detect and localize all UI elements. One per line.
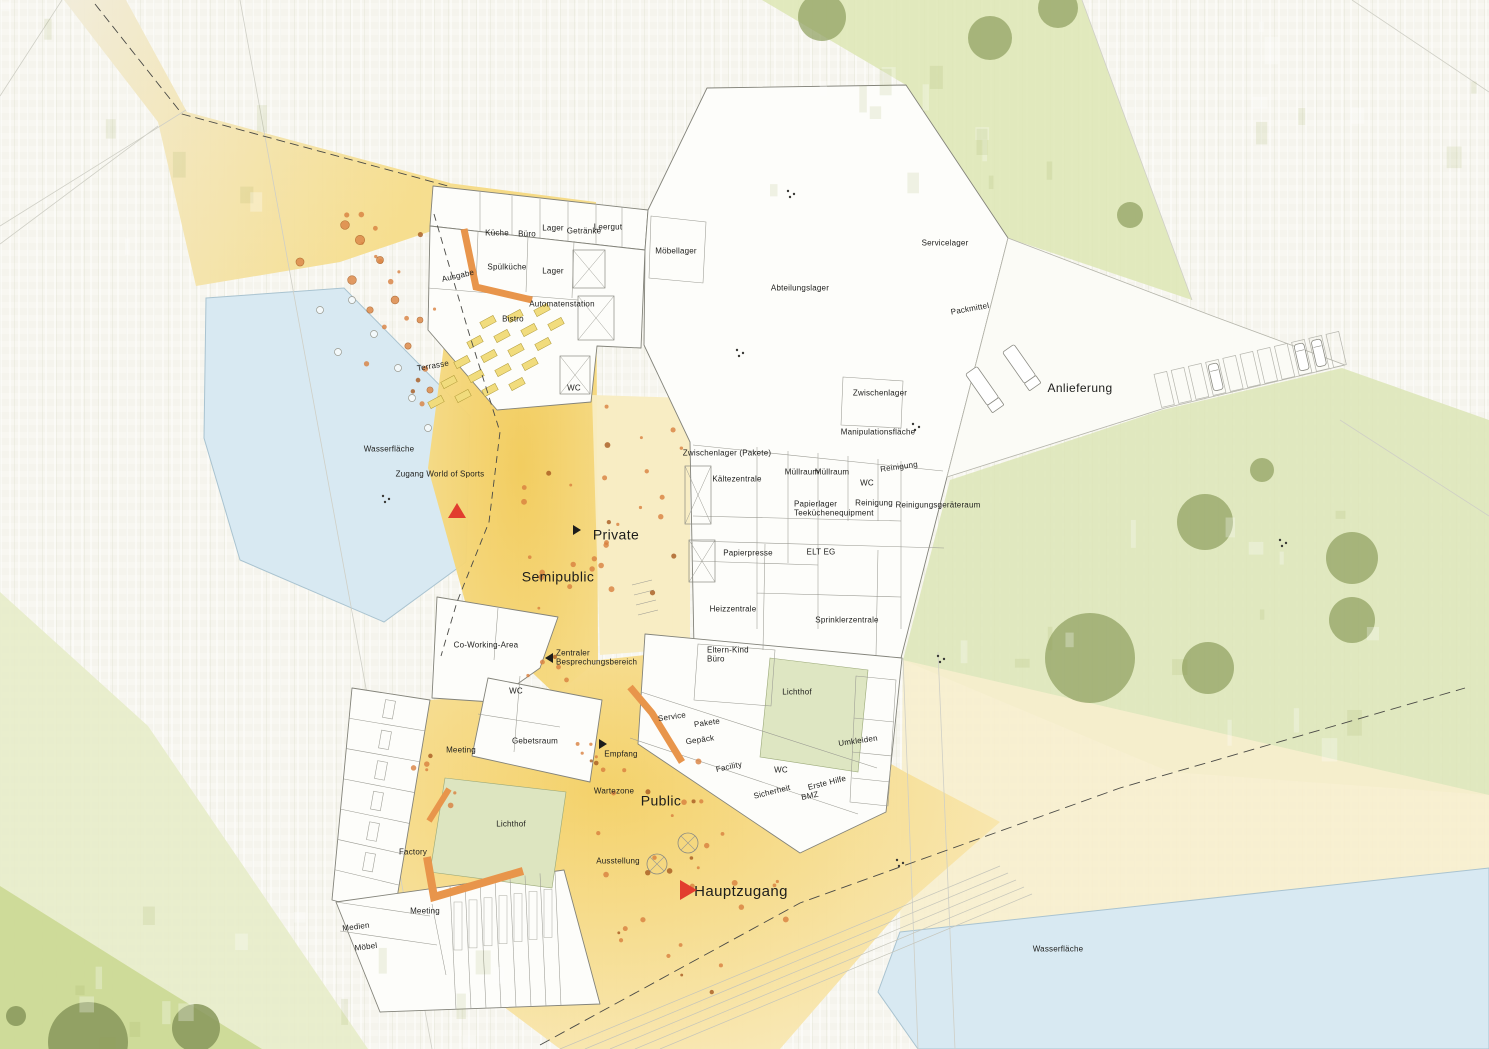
room-label-gepaeck: Gepäck [685,733,715,746]
room-label-zentraler-besprechungsbereich: Zentraler Besprechungsbereich [556,649,637,668]
room-label-elt-eg: ELT EG [807,547,836,556]
labels-layer: PrivateSemipublicPublicHauptzugangAnlief… [0,0,1489,1049]
zone-label-hauptzugang: Hauptzugang [694,883,788,901]
room-label-leergut: Leergut [594,222,623,231]
room-label-co-working-area: Co-Working-Area [454,640,519,649]
room-label-papierpresse: Papierpresse [723,548,773,557]
zugang-world-of-sports-marker [448,503,466,518]
room-label-zwischenlager: Zwischenlager [853,388,907,397]
room-label-sicherheit: Sicherheit [753,783,792,801]
room-label-ausgabe: Ausgabe [441,268,475,285]
room-label-meeting-sued: Meeting [410,906,440,915]
empfang-marker [599,739,607,749]
room-label-wc-facility: WC [774,765,788,774]
room-label-teekuechenequipment: Teeküchenequipment [794,508,874,517]
room-label-umkleiden: Umkleiden [838,734,879,749]
zone-label-public: Public [641,793,682,810]
room-label-reinigungsgeraeteraum: Reinigungsgeräteraum [896,500,981,509]
room-label-moebellager: Möbellager [655,246,697,255]
room-label-pakete: Pakete [693,717,720,730]
room-label-service: Service [657,710,686,723]
area-label-zugang-world-of-sports: Zugang World of Sports [396,469,485,478]
room-label-kueche: Küche [485,228,509,237]
besprechungsbereich-marker [545,653,553,663]
area-label-wasserflaeche-suedost: Wasserfläche [1033,944,1084,953]
room-label-empfang: Empfang [604,749,637,758]
room-label-eltern-kind-buero: Eltern-Kind Büro [707,646,749,665]
room-label-moebel: Möbel [354,941,378,953]
room-label-ausstellung: Ausstellung [596,856,640,865]
room-label-facility: Facility [715,760,743,775]
room-label-medien: Medien [342,921,370,934]
room-label-buero: Büro [518,229,536,238]
room-label-wc-technik: WC [860,478,874,487]
room-label-meeting-west: Meeting [446,745,476,754]
room-label-automatenstation: Automatenstation [529,299,594,308]
private-entry-marker [573,525,581,535]
site-plan: PrivateSemipublicPublicHauptzugangAnlief… [0,0,1489,1049]
room-label-abteilungslager: Abteilungslager [771,283,829,292]
room-label-packmittel: Packmittel [950,301,990,317]
room-label-lager-sued: Lager [542,266,563,275]
room-label-lichthof-west: Lichthof [496,819,526,828]
hauptzugang-marker [680,880,697,900]
room-label-gebetsraum: Gebetsraum [512,736,558,745]
room-label-heizzentrale: Heizzentrale [710,604,757,613]
room-label-terrasse: Terrasse [416,359,449,374]
room-label-wc-coworking: WC [509,686,523,695]
room-label-lager-nord: Lager [542,223,563,232]
room-label-factory: Factory [399,847,427,856]
room-label-wartezone: Wartezone [594,786,634,795]
room-label-kaeltezentrale: Kältezentrale [712,474,761,483]
room-label-zwischenlager-pakete: Zwischenlager (Pakete) [683,448,771,457]
room-label-bistro: Bistro [502,314,524,323]
zone-label-private: Private [593,527,639,544]
room-label-lichthof-ost: Lichthof [782,687,812,696]
room-label-wc-bistro: WC [567,383,581,392]
room-label-reinigung-2: Reinigung [855,498,893,507]
room-label-spuelkueche: Spülküche [487,262,526,271]
area-label-wasserflaeche-west: Wasserfläche [364,444,415,453]
room-label-sprinklerzentrale: Sprinklerzentrale [815,615,878,624]
room-label-servicelager: Servicelager [922,238,969,247]
zone-label-semipublic: Semipublic [522,569,594,586]
room-label-muellraum-2: Müllraum [815,467,850,476]
room-label-reinigung-1: Reinigung [880,460,919,475]
zone-label-anlieferung: Anlieferung [1047,381,1112,395]
room-label-bmz: BMZ [800,790,819,803]
room-label-manipulationsflaeche: Manipulationsfläche [841,427,916,436]
